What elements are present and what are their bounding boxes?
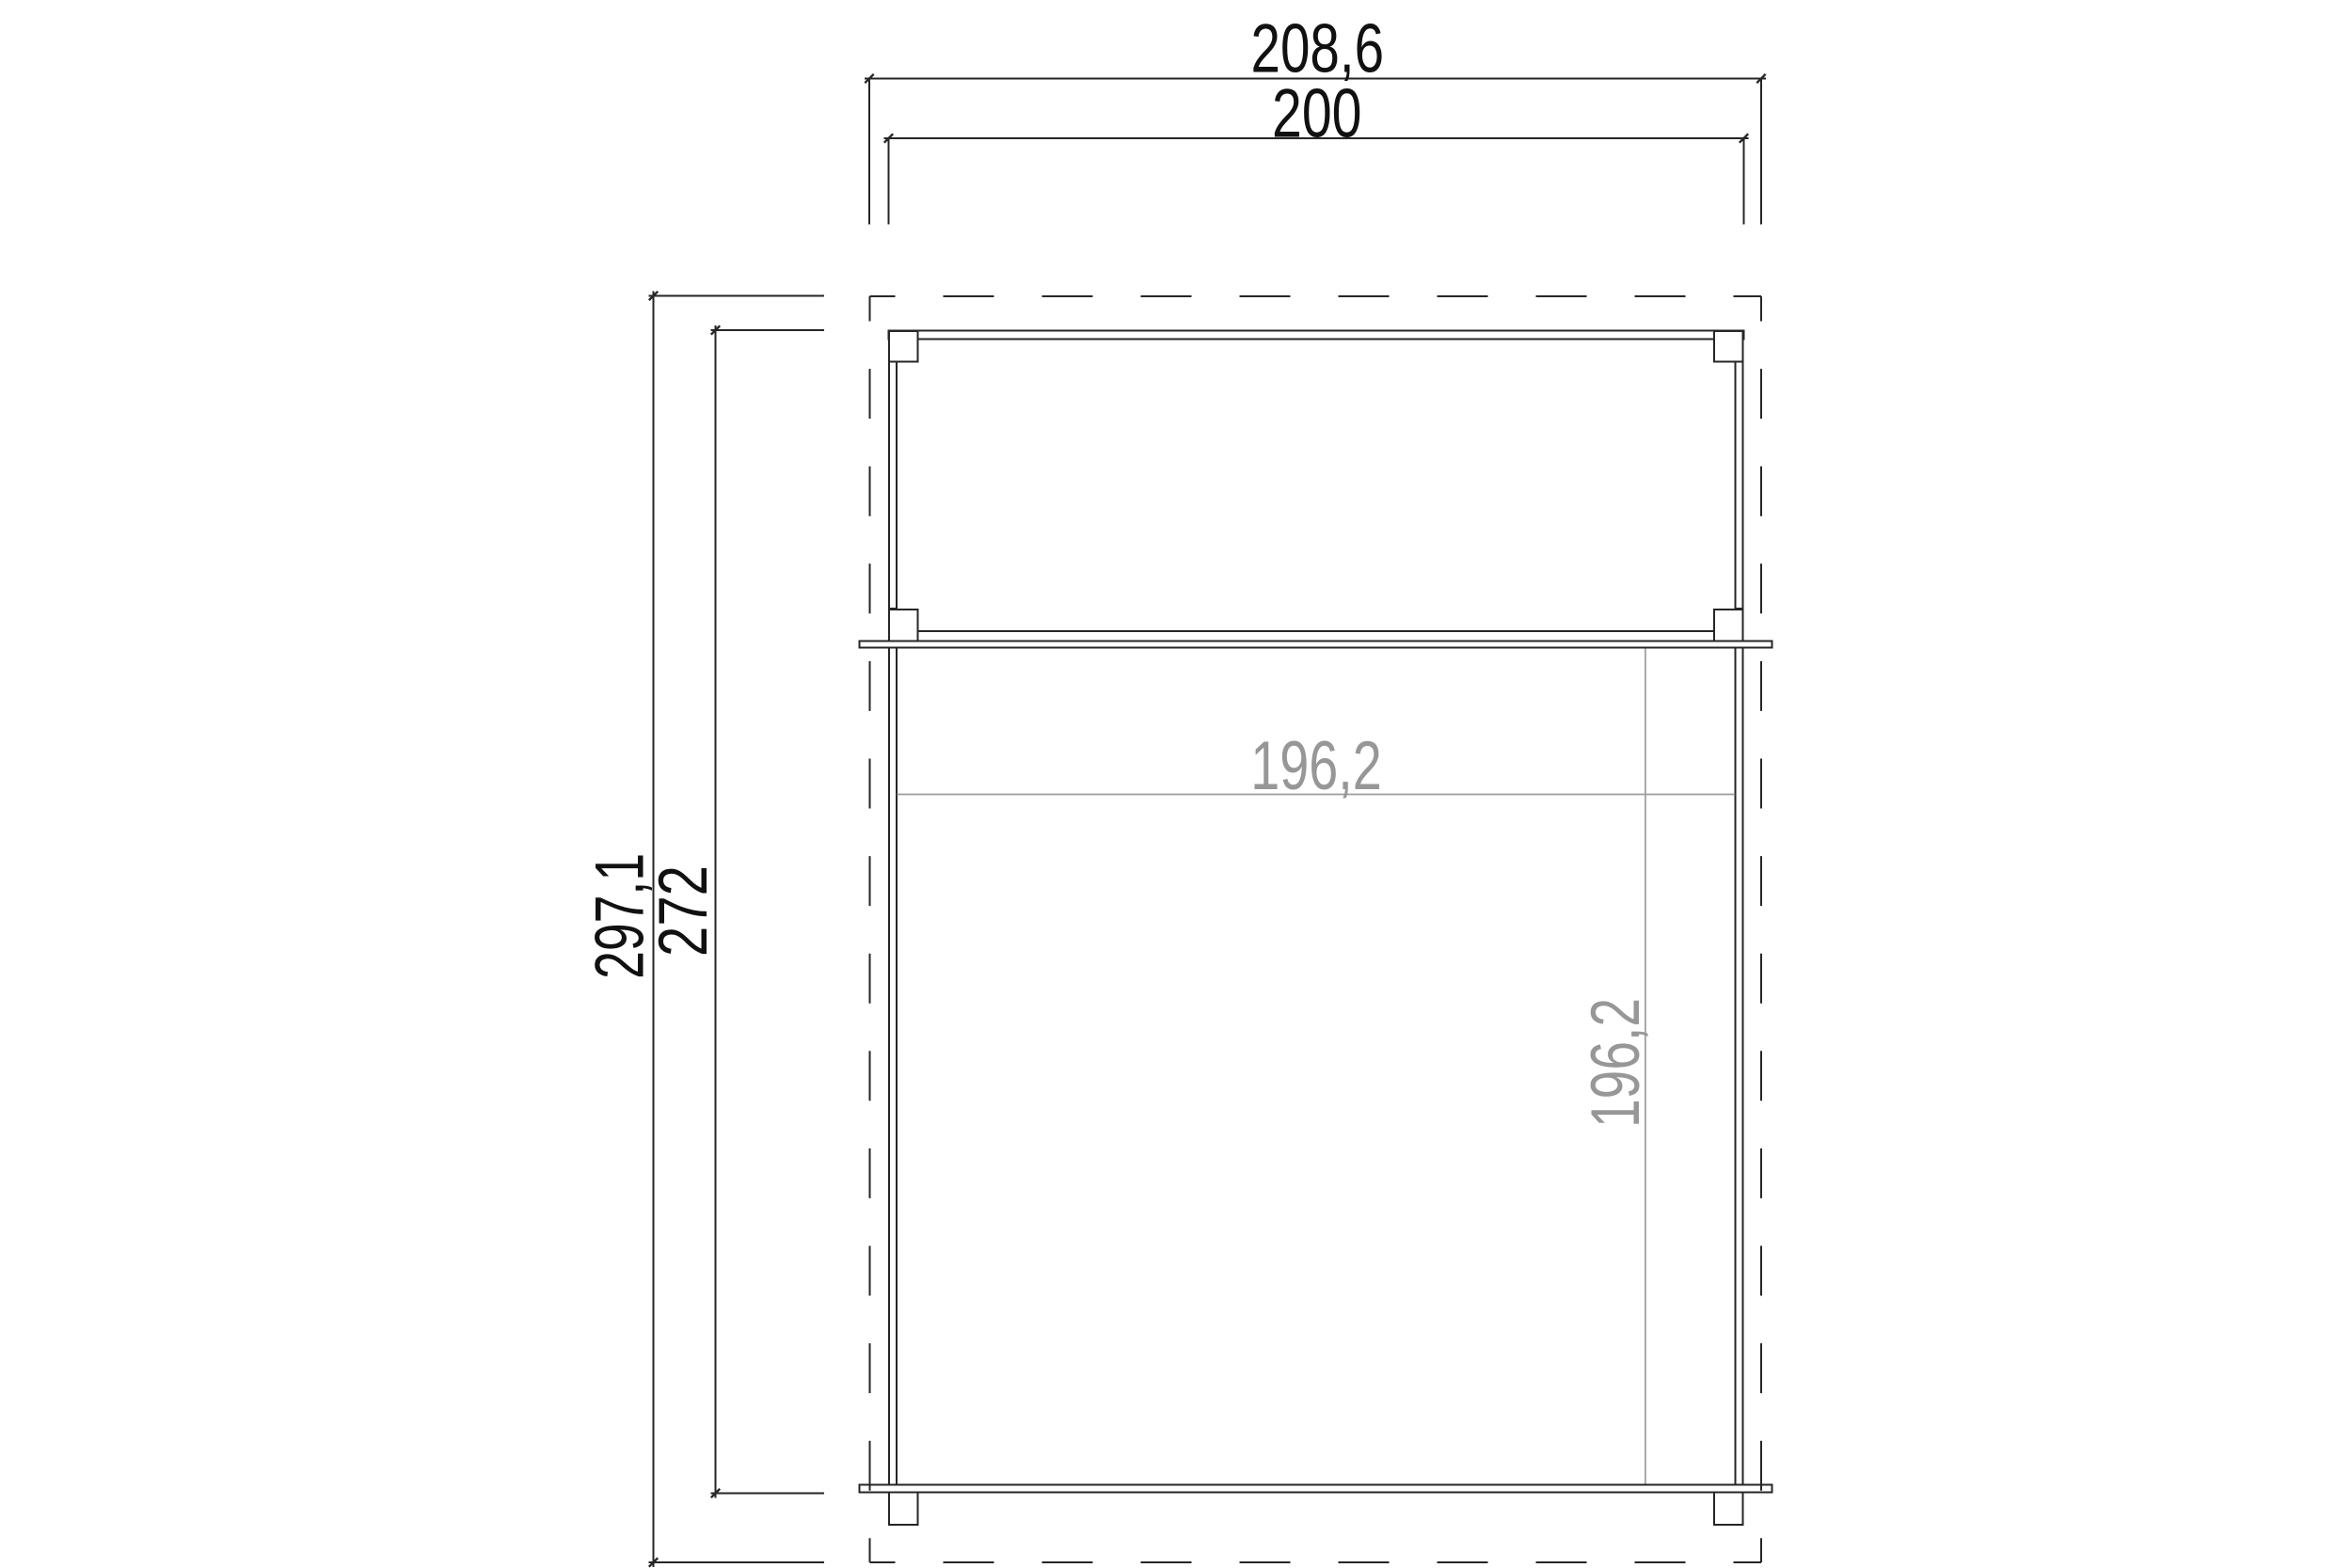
svg-text:272: 272 — [645, 865, 722, 957]
svg-text:196,2: 196,2 — [1578, 998, 1654, 1128]
svg-text:200: 200 — [1272, 75, 1362, 151]
svg-text:196,2: 196,2 — [1250, 728, 1382, 804]
